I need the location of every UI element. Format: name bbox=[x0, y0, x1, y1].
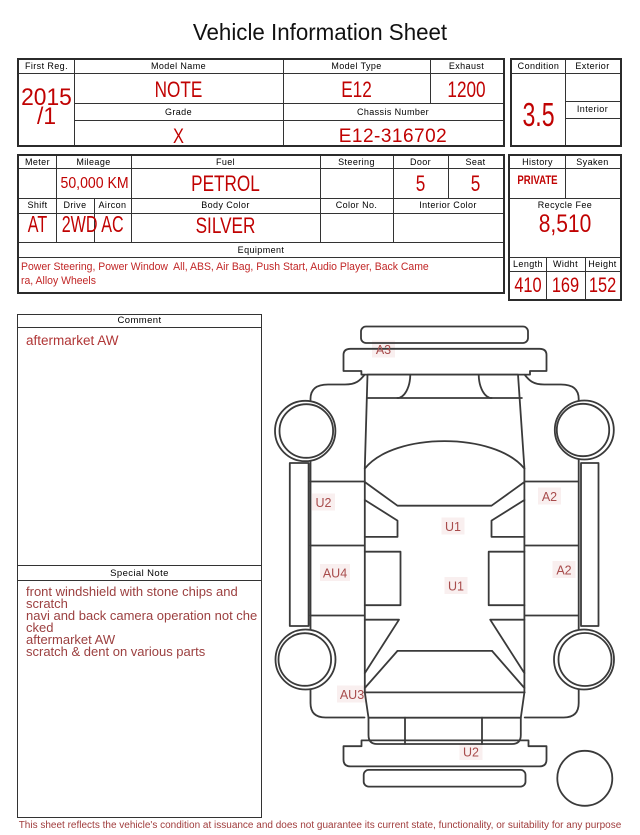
svg-text:U1: U1 bbox=[445, 520, 461, 534]
svg-text:A3: A3 bbox=[376, 343, 391, 357]
svg-text:AU4: AU4 bbox=[323, 567, 347, 581]
svg-text:A2: A2 bbox=[542, 490, 557, 504]
svg-text:AU3: AU3 bbox=[340, 688, 364, 702]
svg-text:U2: U2 bbox=[463, 746, 479, 760]
svg-text:A2: A2 bbox=[556, 564, 571, 578]
svg-text:U2: U2 bbox=[316, 496, 332, 510]
svg-text:U1: U1 bbox=[448, 580, 464, 594]
